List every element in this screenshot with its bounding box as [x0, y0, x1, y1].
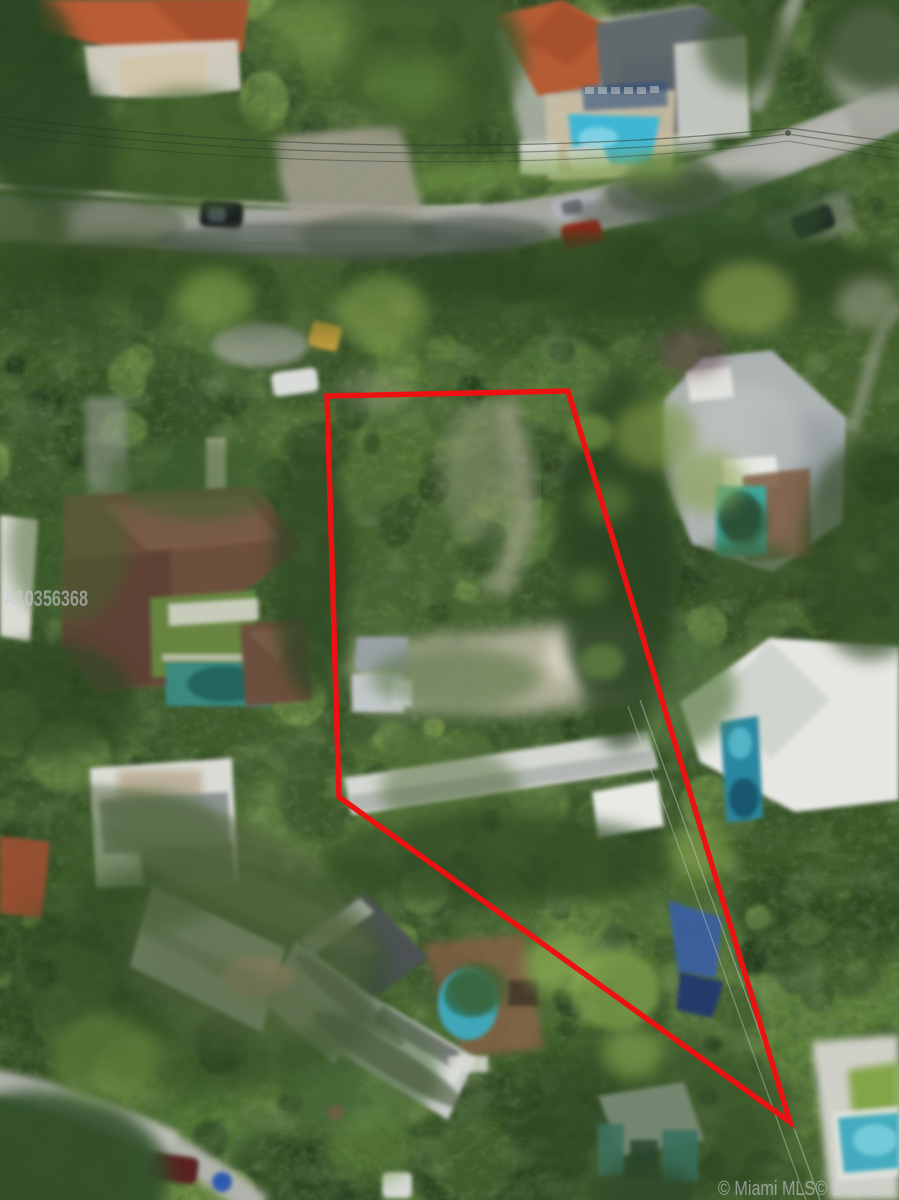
svg-text:© Miami MLS© 10/2017: © Miami MLS© 10/2017: [718, 1178, 890, 1200]
svg-text:A10356368: A10356368: [4, 586, 88, 611]
